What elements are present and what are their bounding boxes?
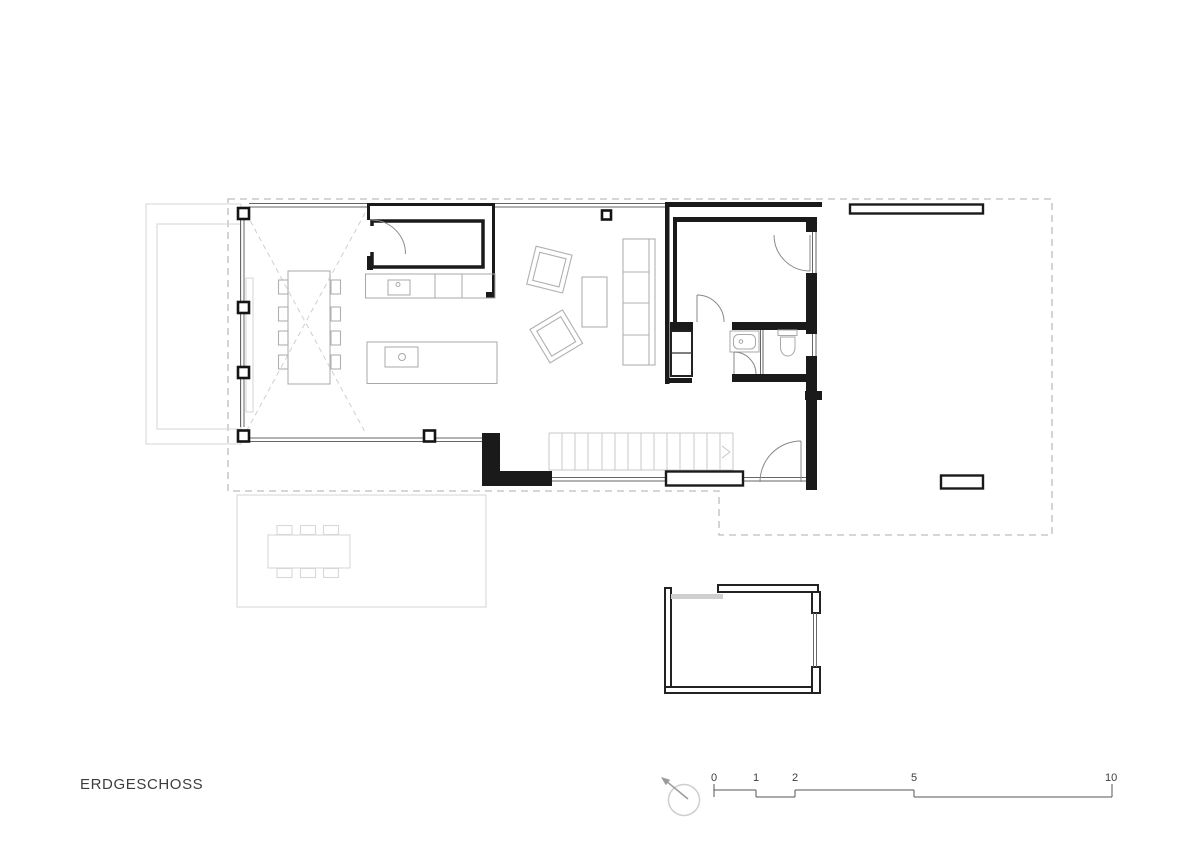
kitchen bbox=[366, 203, 498, 384]
chair bbox=[331, 280, 341, 294]
drawing-sheet: 0 1 2 5 10 ERDGESCHOSS bbox=[0, 0, 1200, 848]
garden-chair bbox=[301, 569, 316, 578]
scale-mark: 10 bbox=[1105, 772, 1117, 784]
site-wall-right bbox=[941, 476, 983, 489]
kitchen-island bbox=[367, 342, 497, 384]
sofa bbox=[623, 239, 655, 365]
column bbox=[602, 211, 611, 220]
toilet bbox=[781, 337, 796, 356]
chair bbox=[331, 355, 341, 369]
site-wall-top bbox=[850, 205, 983, 214]
toilet-cistern bbox=[778, 330, 797, 336]
bedroom-exterior-door bbox=[774, 235, 810, 271]
bedroom-bath-block bbox=[665, 202, 822, 490]
north-facade bbox=[495, 204, 665, 220]
staircase bbox=[549, 433, 733, 470]
garden-chair bbox=[324, 569, 339, 578]
garden-dining-area bbox=[237, 495, 486, 607]
dining-table bbox=[288, 271, 330, 384]
hall-closet bbox=[671, 331, 692, 376]
pantry-door bbox=[372, 220, 406, 254]
armchair bbox=[530, 310, 583, 363]
garden-chair bbox=[277, 569, 292, 578]
bath-window bbox=[813, 334, 817, 356]
chair bbox=[279, 307, 289, 321]
north-arrow-icon bbox=[661, 777, 700, 816]
armchair bbox=[527, 246, 572, 293]
island-sink bbox=[385, 347, 418, 367]
south-wall bbox=[482, 433, 806, 486]
bathroom-door bbox=[734, 352, 756, 374]
annex-gate bbox=[671, 594, 723, 599]
scale-mark: 5 bbox=[911, 772, 917, 784]
plan-title: ERDGESCHOSS bbox=[80, 776, 203, 793]
chair bbox=[279, 331, 289, 345]
garden-chair bbox=[277, 526, 292, 535]
terrace-cross-bracing bbox=[246, 213, 365, 432]
pantry-walls bbox=[372, 221, 483, 267]
pool bbox=[146, 204, 241, 444]
terrace bbox=[238, 204, 482, 442]
column bbox=[424, 431, 435, 442]
bedroom-door bbox=[697, 295, 724, 322]
garden-chair bbox=[301, 526, 316, 535]
annex bbox=[665, 585, 820, 693]
coffee-table bbox=[582, 277, 607, 327]
roof-outline bbox=[228, 199, 1052, 535]
washbasin bbox=[734, 335, 756, 350]
chair bbox=[331, 307, 341, 321]
living-room bbox=[527, 239, 655, 365]
scale-mark: 1 bbox=[753, 772, 759, 784]
entrance-door bbox=[760, 441, 801, 482]
bathroom bbox=[730, 330, 816, 374]
annex-window bbox=[814, 613, 817, 667]
garden-table bbox=[268, 535, 350, 568]
dining-table-group bbox=[279, 271, 341, 384]
stair-direction-arrow bbox=[722, 446, 730, 458]
column bbox=[238, 208, 249, 219]
column bbox=[238, 302, 249, 313]
column bbox=[238, 431, 249, 442]
scale-mark: 0 bbox=[711, 772, 717, 784]
column bbox=[238, 367, 249, 378]
chair bbox=[331, 331, 341, 345]
floor-plan-drawing: 0 1 2 5 10 ERDGESCHOSS bbox=[0, 0, 1200, 848]
island-faucet bbox=[399, 354, 406, 361]
scale-mark: 2 bbox=[792, 772, 798, 784]
entrance-wall-pier bbox=[666, 472, 743, 486]
scale-bar: 0 1 2 5 10 bbox=[711, 772, 1117, 797]
kitchen-counter bbox=[366, 274, 496, 298]
curtain-strip bbox=[246, 278, 253, 412]
garden-chair bbox=[324, 526, 339, 535]
